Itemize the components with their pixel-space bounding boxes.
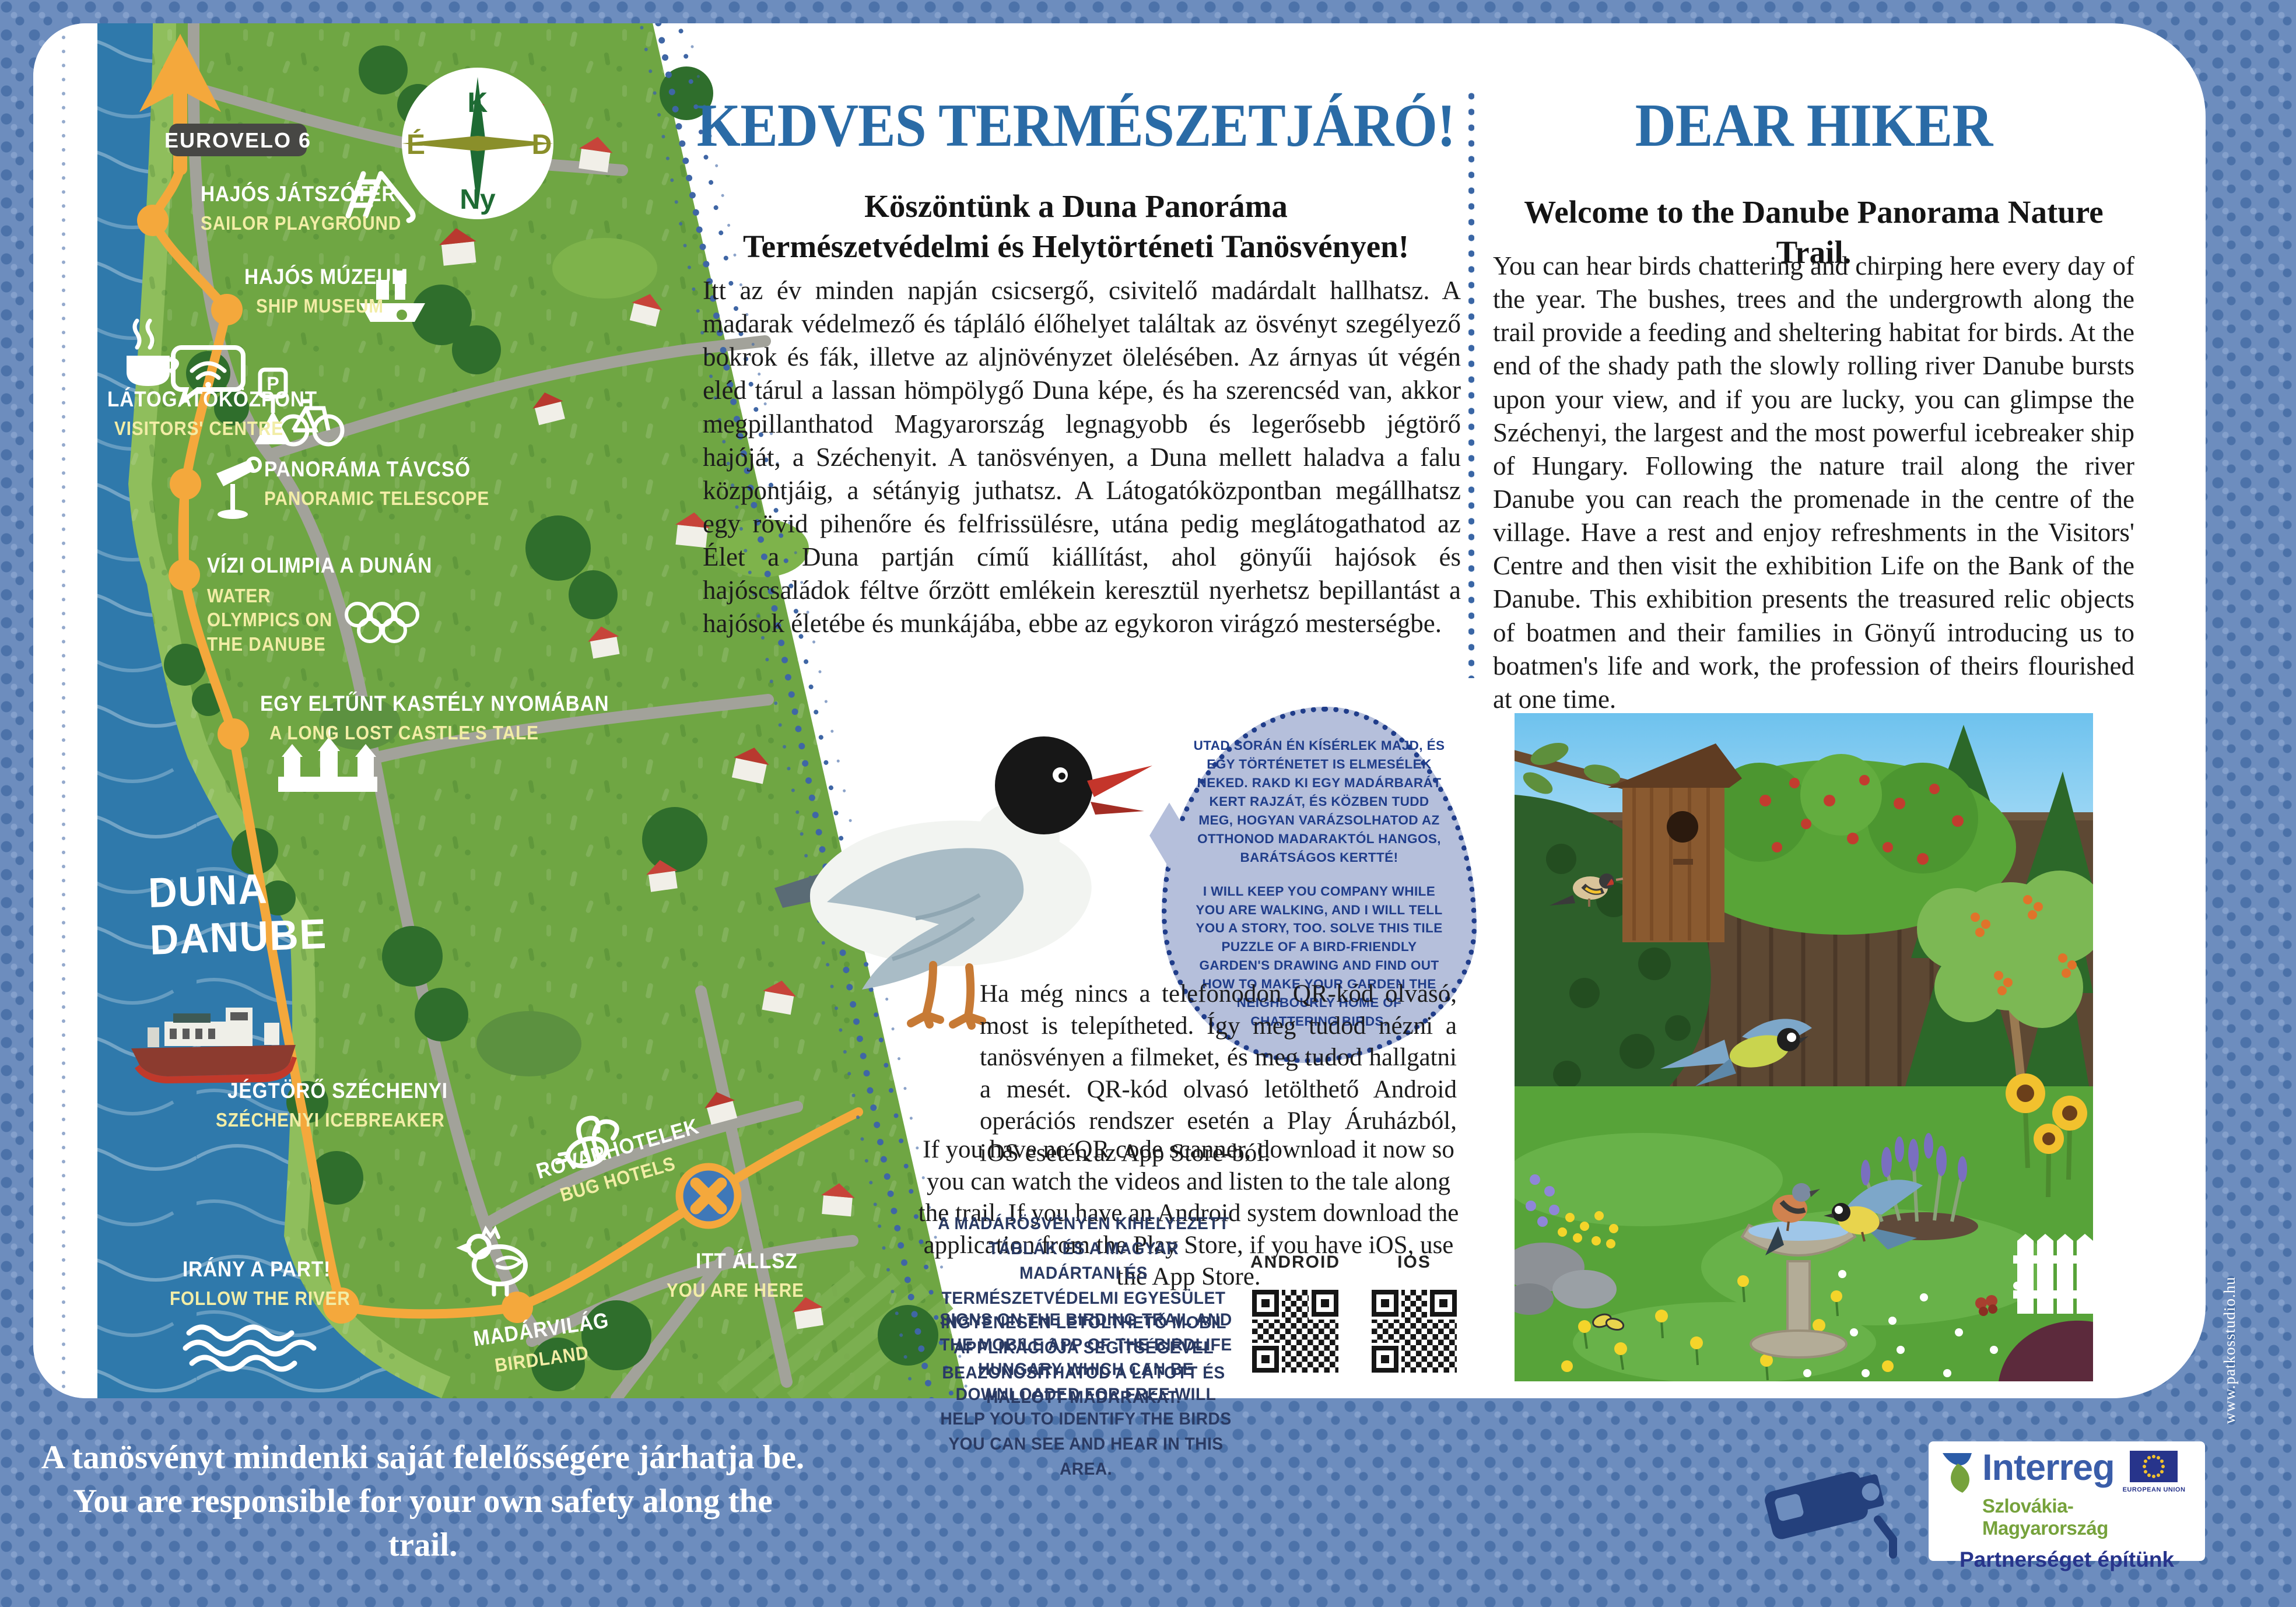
interreg-region: Szlovákia-Magyarország [1982,1495,2193,1539]
gull-legs [911,965,982,1026]
gull-beak-lower [1091,802,1144,815]
station-lost-castle: EGY ELTŰNT KASTÉLY NYOMÁBAN A LONG LOST … [260,692,648,744]
station-label-hu: IRÁNY A PART! [183,1257,352,1282]
station-label-en: WATER OLYMPICS ON THE DANUBE [207,584,346,656]
compass-d: D [532,129,552,160]
en-title: DEAR HIKER [1493,90,2134,160]
ios-qr-code [1372,1290,1457,1373]
station-label-hu: PANORÁMA TÁVCSŐ [264,457,489,482]
android-qr-code [1252,1290,1338,1373]
station-ship-museum: HAJÓS MÚZEUM SHIP MUSEUM [244,265,426,317]
disclaimer-hu: A tanösvényt mindenki saját felelősségér… [41,1436,805,1479]
station-label-hu: LÁTOGATÓKÖZPONT [107,387,317,412]
eu-label: EUROPEAN UNION [2123,1486,2186,1493]
trail-information-board: { "panel": { "hu": { "title": "KEDVES TE… [0,0,2296,1607]
station-label-en: YOU ARE HERE [667,1279,804,1301]
svg-text:EUROVELO 6: EUROVELO 6 [164,128,311,152]
safety-disclaimer: A tanösvényt mindenki saját felelősségér… [41,1436,805,1567]
compass-k: K [468,87,488,118]
compass-rose: K Ny D É [402,68,553,219]
station-label-en: SHIP MUSEUM [256,295,409,317]
station-label-en: FOLLOW THE RIVER [170,1287,350,1310]
station-label-en: VISITORS' CENTRE [114,417,318,440]
river-name-label: DUNA DANUBE [148,864,328,964]
disclaimer-en: You are responsible for your own safety … [41,1479,805,1567]
en-body-text: You can hear birds chattering and chirpi… [1493,250,2134,716]
hu-subtitle: Köszöntünk a Duna Panoráma Természetvéde… [688,187,1464,267]
station-label-hu: EGY ELTŰNT KASTÉLY NYOMÁBAN [260,692,609,716]
station-label-hu: HAJÓS MÚZEUM [244,265,408,289]
station-visitors-centre: LÁTOGATÓKÖZPONT VISITORS' CENTRE [107,387,341,440]
interreg-tagline: Partnerséget építünk [1940,1548,2193,1572]
station-label-en: SZÉCHENYI ICEBREAKER [216,1109,447,1131]
eu-flag: EUROPEAN UNION [2123,1451,2186,1493]
station-icebreaker: JÉGTÖRŐ SZÉCHENYI SZÉCHENYI ICEBREAKER [227,1079,472,1131]
app-note-en: SIGNS ON THE BIRDING TRAIL AND THE MOBIL… [938,1308,1234,1482]
station-label-hu: HAJÓS JÁTSZÓTÉR [201,182,401,206]
interreg-swoosh-icon [1940,1451,1976,1494]
hu-body-text: Itt az év minden napján csicsergő, csivi… [703,274,1461,641]
eurovelo-badge: EUROVELO 6 [164,124,311,156]
studio-credit: www.patkosstudio.hu [2221,1276,2239,1424]
bubble-text-hu: UTAD SORÁN ÉN KÍSÉRLEK MAJD, ÉS EGY TÖRT… [1193,736,1446,867]
station-label-hu: JÉGTÖRŐ SZÉCHENYI [227,1079,448,1103]
ios-label: IOS [1370,1252,1458,1272]
hu-title: KEDVES TERMÉSZETJÁRÓ! [688,90,1464,160]
station-label-hu: VÍZI OLIMPIA A DUNÁN [207,553,432,578]
station-sailor-playground: HAJÓS JÁTSZÓTÉR SAILOR PLAYGROUND [201,182,423,234]
compass-e: É [406,129,425,160]
android-label: ANDROID [1250,1252,1338,1272]
station-label-hu: ITT ÁLLSZ [696,1249,807,1273]
column-separator-dots [1468,92,1474,678]
picket-fence [2013,1234,2093,1314]
interreg-brand: Interreg [1982,1451,2115,1486]
station-label-en: PANORAMIC TELESCOPE [264,487,489,510]
station-you-are-here: ITT ÁLLSZ YOU ARE HERE [667,1249,819,1301]
station-panoramic-telescope: PANORÁMA TÁVCSŐ PANORAMIC TELESCOPE [264,457,514,510]
station-water-olympics: VÍZI OLIMPIA A DUNÁN WATER OLYMPICS ON T… [207,553,457,656]
you-are-here-marker [679,1167,738,1225]
compass-ny: Ny [460,184,496,215]
station-follow-river: IRÁNY A PART! FOLLOW THE RIVER [183,1257,370,1310]
bird-friendly-garden-illustration [1515,713,2093,1381]
gull-head [995,736,1093,834]
station-label-en: A LONG LOST CASTLE'S TALE [269,722,610,744]
interreg-logo-box: Interreg EUROPEAN UNION Szlovákia-Magyar… [1929,1441,2205,1561]
gull-beak-upper [1087,766,1152,797]
map-left-margin [33,23,97,1398]
station-label-en: SAILOR PLAYGROUND [201,212,401,234]
cctv-camera-icon [1755,1457,1919,1567]
